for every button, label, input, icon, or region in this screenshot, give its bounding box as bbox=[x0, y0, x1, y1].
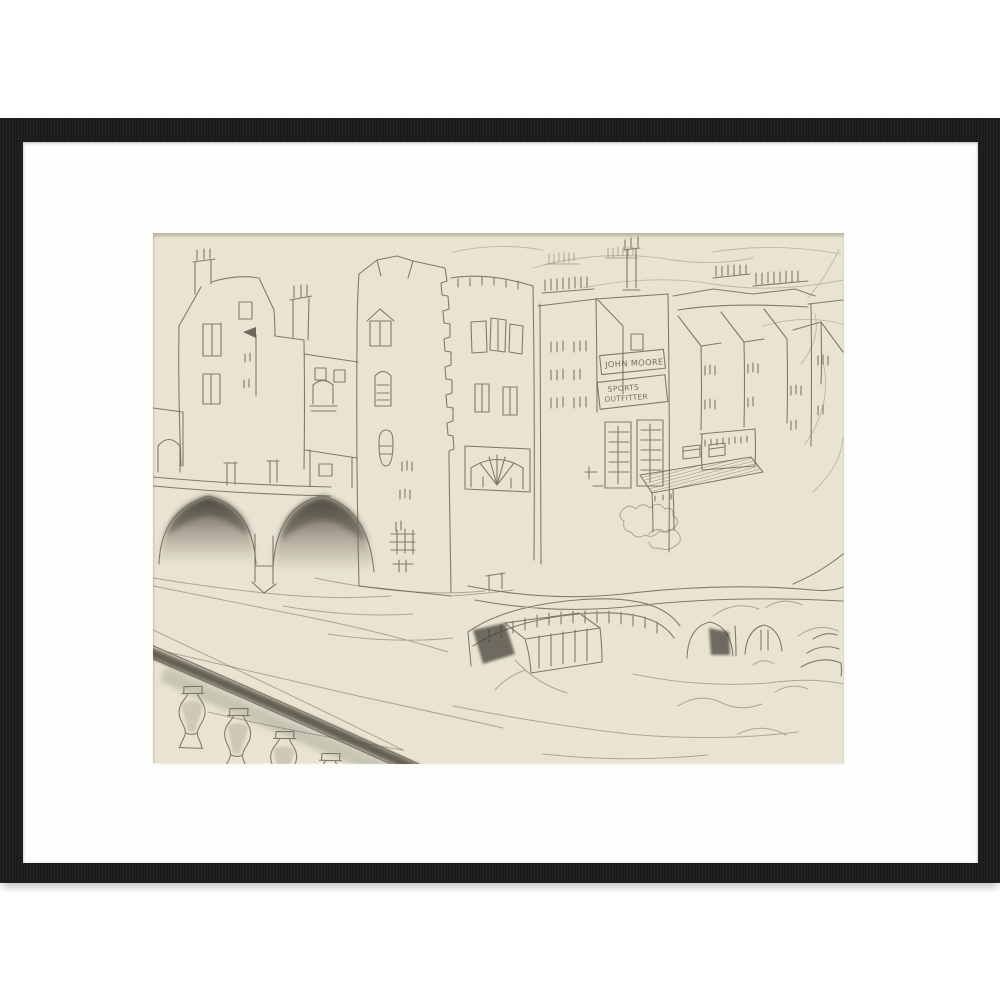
center-tower bbox=[357, 256, 454, 596]
pencil-sketch: JOHN MOORE SPORTS OUTFITTER bbox=[153, 234, 844, 764]
weir bbox=[468, 554, 843, 693]
mat-board: JOHN MOORE SPORTS OUTFITTER bbox=[23, 142, 978, 863]
product-photo: JOHN MOORE SPORTS OUTFITTER bbox=[0, 0, 1000, 1000]
river-water bbox=[153, 578, 843, 759]
shop-sign-2-line2: OUTFITTER bbox=[604, 392, 648, 404]
riverside-buildings bbox=[620, 429, 763, 550]
left-house bbox=[153, 249, 358, 488]
shop-facades: JOHN MOORE SPORTS OUTFITTER bbox=[538, 277, 669, 564]
bridge-arches bbox=[153, 460, 374, 593]
balustrade bbox=[153, 630, 447, 764]
drawing-paper: JOHN MOORE SPORTS OUTFITTER bbox=[153, 233, 844, 763]
shop-sign-1-text: JOHN MOORE bbox=[604, 356, 664, 369]
facade-right-of-tower bbox=[451, 276, 534, 560]
right-terrace bbox=[673, 265, 843, 446]
picture-frame: JOHN MOORE SPORTS OUTFITTER bbox=[0, 118, 1000, 883]
shop-sign-1: JOHN MOORE bbox=[599, 349, 665, 374]
shop-sign-2: SPORTS OUTFITTER bbox=[597, 375, 668, 410]
